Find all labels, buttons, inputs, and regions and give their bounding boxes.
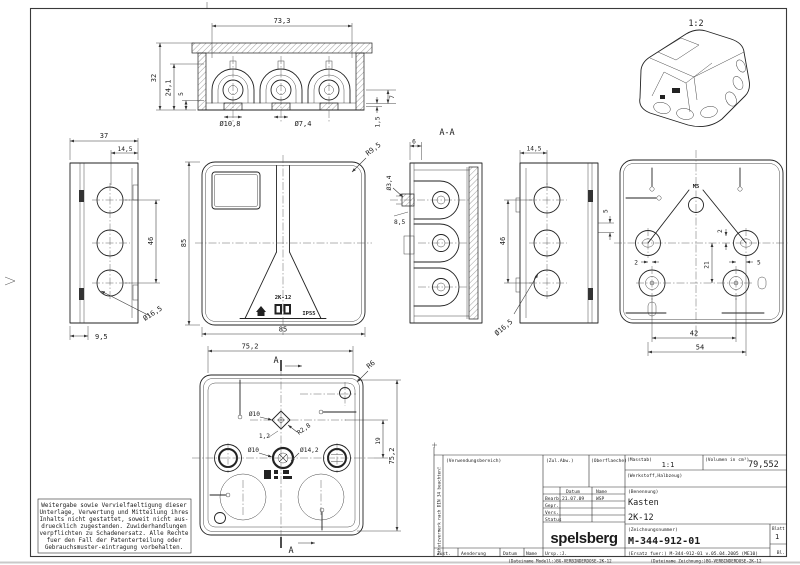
house-icon	[256, 306, 266, 316]
row-vers: Vers.	[545, 510, 559, 516]
dim-rear-off-top: 2	[717, 229, 724, 233]
section-arrow-bottom: A	[288, 546, 293, 556]
dim-top-right: 7	[389, 95, 396, 99]
label-plate	[212, 172, 260, 209]
col-aenderung: Aenderung	[461, 551, 486, 557]
benennung-line2: 2K-12	[628, 513, 654, 523]
disclaimer-line: Weitergabe sowie Vervielfaeltigung diese…	[41, 503, 187, 509]
dim-section-hole: Ø3,4	[385, 175, 393, 190]
benennung-line1: Kasten	[628, 498, 659, 508]
dim-top-width: 73,3	[274, 17, 291, 25]
schutzvermerk-note: Schutzvermerk nach DIN 34 beachten!	[437, 467, 442, 555]
dim-right-pitch: 46	[499, 237, 507, 245]
view-top-section: 73,3 32 24,1 5 Ø10,8 Ø7,4 7 1,5	[150, 17, 396, 128]
dim-rear-off-right: 5	[757, 260, 761, 267]
protection-class-icon	[276, 305, 282, 314]
dim-rear-center: 21	[704, 261, 711, 269]
col-datum2: Datum	[503, 551, 517, 557]
iso-scale-label: 1:2	[688, 19, 703, 29]
lid-ip-marking: IP55	[302, 311, 315, 317]
dim-left-knockout: Ø16,5	[142, 304, 164, 322]
dim-rear-off-left: 2	[634, 260, 638, 267]
dim-bottom-width: 75,2	[242, 343, 259, 351]
zeichnungsnummer-label: (Zeichnungsnummer)	[628, 527, 678, 533]
dim-dia-108: Ø10,8	[219, 120, 240, 128]
disclaimer-line: fuer den Fall der Patenterteilung oder	[47, 538, 182, 544]
bl-label: Bl.	[777, 550, 785, 556]
fold-mark-icon	[5, 277, 15, 285]
dim-bottom-offset: 19	[375, 437, 382, 445]
dim-front-corner: R9,5	[364, 141, 382, 158]
spelsberg-logo: spelsberg	[550, 530, 617, 547]
dim-bottom-fillet: R2,8	[296, 422, 312, 437]
dim-left-depth: 37	[100, 132, 108, 140]
ursp-note: Ursp.:J.	[545, 551, 567, 557]
view-right-side: 14,5 46 Ø16,5 5	[493, 146, 614, 338]
blatt-label: Blatt	[772, 526, 785, 531]
dim-left-offset: 14,5	[118, 146, 133, 153]
title-block: Schutzvermerk nach DIN 34 beachten! (Ver…	[432, 443, 787, 564]
field-masstab-label: (Masstab)	[627, 457, 652, 463]
dim-bottom-corner: R6	[365, 359, 377, 371]
benennung-label: (Benennung)	[628, 489, 658, 495]
col-datum: Datum	[566, 489, 580, 495]
dim-bottom-hub: Ø14,2	[300, 446, 319, 454]
disclaimer-line: Inhalts nicht gestattet, soweit nicht au…	[40, 517, 189, 523]
disclaimer-line: Unterlage, Verwertung und Mitteilung ihr…	[40, 510, 189, 516]
bearb-name: WSP	[596, 496, 605, 502]
dim-front-height: 85	[180, 239, 188, 247]
col-name2: Name	[526, 551, 537, 557]
disclaimer-line: verpflichten zu Schadenersatz. Alle Rech…	[40, 531, 189, 537]
dim-top-lip: 1,5	[375, 116, 382, 127]
field-masstab-value: 1:1	[662, 461, 675, 469]
dim-right-offset: 14,5	[527, 146, 542, 153]
field-verwendungsbereich: (Verwendungsbereich)	[446, 458, 501, 464]
dim-right-edge: 5	[603, 209, 610, 213]
dim-bottom-hub-hole: Ø10	[248, 446, 259, 454]
field-zul-abw: (Zul.Abw.)	[546, 458, 574, 464]
file-model: (Dateiname Modell:)BG-VERBINDERDOSE-2K-1…	[508, 559, 612, 564]
dim-rear-pitch-outer: 54	[696, 344, 704, 352]
col-zust: Zust.	[437, 551, 451, 557]
dim-bottom-web: 1,2	[259, 433, 270, 440]
dim-dia-74: Ø7,4	[295, 120, 312, 128]
blatt-value: 1	[775, 533, 779, 541]
field-werkstoff: (Werkstoff,Halbzeug)	[627, 473, 682, 479]
ersatz-note: (Ersatz fuer:) M-344-912-01 v.05.04.2005…	[628, 551, 758, 557]
row-gepr: Gepr.	[545, 503, 559, 509]
field-volumen-label: (Volumen in cm³)	[705, 457, 749, 463]
section-arrow-top: A	[273, 356, 278, 366]
col-name: Name	[596, 489, 607, 495]
dim-right-knockout: Ø16,5	[493, 318, 514, 338]
dim-top-height: 32	[150, 74, 158, 82]
row-bearb: Bearb.	[545, 496, 562, 502]
view-section-aa: A-A 6 Ø3,4 8,5	[385, 128, 482, 323]
bearb-datum: 21.07.09	[562, 496, 584, 502]
view-front: 2K-12 IP55 85 85 75,2 R9,5	[180, 141, 383, 373]
dim-left-lid: 9,5	[95, 333, 108, 341]
drawing-canvas: 73,3 32 24,1 5 Ø10,8 Ø7,4 7 1,5 1:2	[0, 0, 800, 565]
dim-top-inner: 24,1	[165, 80, 173, 97]
dim-section-top: 6	[412, 139, 416, 146]
dim-section-step: 8,5	[394, 219, 405, 226]
disclaimer-line: Gebrauchsmuster-eintragung vorbehalten.	[45, 545, 183, 551]
field-oberflaeche: (Oberflaeche)	[591, 458, 627, 464]
dim-front-width: 85	[279, 326, 287, 334]
view-isometric: 1:2	[640, 19, 750, 127]
zeichnungsnummer-value: M-344-912-01	[628, 536, 700, 547]
dim-rear-pitch-inner: 42	[690, 330, 698, 338]
dim-left-pitch: 46	[147, 237, 155, 245]
view-bottom: A A R6 Ø10 1,2 R2,8 Ø10 Ø14,2 19 75,2	[192, 356, 401, 556]
view-left-side: 37 14,5 46 Ø16,5 9,5	[70, 132, 164, 341]
disclaimer-box: Weitergabe sowie Vervielfaeltigung diese…	[38, 499, 191, 553]
view-rear: M5 2 21 2 5 42 54	[614, 150, 788, 356]
dim-top-foot: 5	[178, 92, 185, 96]
cad-drawing-sheet: 73,3 32 24,1 5 Ø10,8 Ø7,4 7 1,5 1:2	[0, 0, 800, 565]
section-title: A-A	[439, 128, 454, 138]
lid-model-marking: 2K-12	[275, 295, 292, 301]
dim-bottom-boss: Ø10	[249, 410, 260, 418]
dome-knockouts	[212, 56, 350, 122]
dim-bottom-height: 75,2	[388, 448, 396, 465]
disclaimer-line: druecklich zugestanden. Zuwiderhandlunge…	[41, 524, 187, 530]
row-status: Status	[545, 517, 562, 523]
field-volumen-value: 79,552	[748, 460, 779, 470]
file-drawing: (Dateiname Zeichnung:)BG-VERBINDERDOSE-2…	[651, 559, 762, 564]
